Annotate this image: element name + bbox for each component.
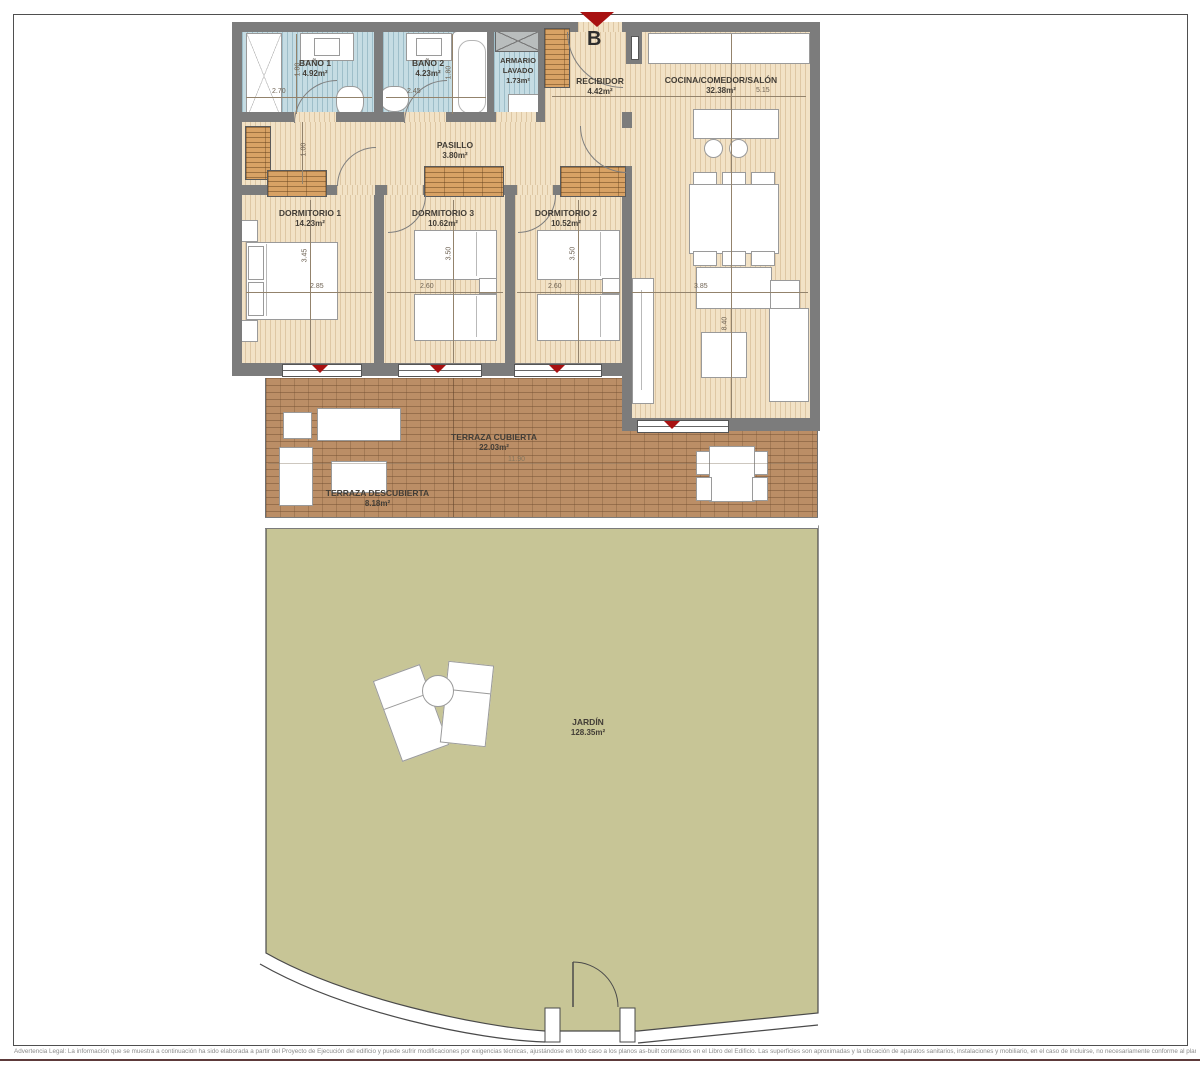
island-stool-1 bbox=[704, 139, 723, 158]
bano2-toilet bbox=[380, 86, 409, 112]
terrace-sofa bbox=[317, 408, 401, 441]
room-name: BAÑO 1 bbox=[285, 58, 345, 69]
gate-post-right bbox=[620, 1008, 635, 1042]
dim-salon-h: 8.40 bbox=[722, 307, 729, 341]
label-pasillo: PASILLO 3.80m² bbox=[425, 140, 485, 161]
sofa-corner bbox=[770, 280, 800, 310]
terrace-dining-table bbox=[709, 446, 755, 502]
dim-line bbox=[246, 292, 372, 293]
room-area: 22.03m² bbox=[446, 443, 542, 453]
wardrobe-dorm3 bbox=[424, 166, 504, 197]
washing-machine bbox=[495, 30, 541, 52]
sofa-vertical bbox=[769, 308, 809, 402]
bed-line bbox=[600, 232, 601, 276]
room-name: TERRAZA CUBIERTA bbox=[446, 432, 542, 443]
label-bano2: BAÑO 2 4.23m² bbox=[398, 58, 458, 79]
dining-chair bbox=[693, 251, 717, 266]
terrace-left-edge bbox=[265, 378, 266, 526]
room-area: 1.73m² bbox=[492, 76, 544, 86]
room-area: 8.18m² bbox=[325, 499, 430, 509]
wall-bano1-bano2 bbox=[374, 22, 383, 122]
bed-line bbox=[600, 296, 601, 337]
salon-window bbox=[637, 420, 729, 433]
legal-disclaimer: Advertencia Legal: La información que se… bbox=[14, 1048, 1196, 1055]
room-name: JARDÍN bbox=[545, 717, 631, 728]
dim-bano1-w: 2.70 bbox=[272, 88, 286, 95]
label-cocina: COCINA/COMEDOR/SALÓN 32.38m² bbox=[640, 75, 802, 96]
room-name: BAÑO 2 bbox=[398, 58, 458, 69]
window-arrow-icon bbox=[312, 365, 328, 373]
bed-line bbox=[476, 296, 477, 337]
sun-lounger bbox=[440, 661, 494, 747]
unit-letter: B bbox=[587, 28, 601, 51]
dim-line-terrace bbox=[268, 463, 816, 464]
dim-line bbox=[517, 292, 620, 293]
label-jardin: JARDÍN 128.35m² bbox=[545, 717, 631, 738]
room-name: TERRAZA DESCUBIERTA bbox=[325, 488, 430, 499]
room-name: COCINA/COMEDOR/SALÓN bbox=[640, 75, 802, 86]
room-name: DORMITORIO 2 bbox=[528, 208, 604, 219]
dim-terraza-w: 11.90 bbox=[508, 456, 525, 463]
dim-bano2-w: 2.45 bbox=[407, 88, 421, 95]
dim-line bbox=[632, 292, 808, 293]
pillow bbox=[248, 246, 264, 280]
wall-top bbox=[232, 22, 820, 32]
kitchen-duct-inner bbox=[631, 36, 639, 60]
terrace-chair bbox=[696, 477, 712, 501]
wall-dorm1-dorm3 bbox=[374, 195, 384, 373]
bed-line bbox=[266, 244, 267, 316]
dorm2-door-opening bbox=[517, 185, 553, 195]
room-area: 128.35m² bbox=[545, 728, 631, 738]
room-area: 10.62m² bbox=[405, 219, 481, 229]
room-area: 10.52m² bbox=[528, 219, 604, 229]
dorm1-door-opening bbox=[337, 185, 375, 195]
label-bano1: BAÑO 1 4.92m² bbox=[285, 58, 345, 79]
dim-salon-w: 3.85 bbox=[694, 283, 708, 290]
dorm3-bed-b bbox=[414, 294, 497, 341]
kitchen-counter bbox=[648, 33, 810, 64]
entrance-arrow-icon bbox=[580, 12, 614, 27]
bathtub-inner bbox=[458, 40, 486, 114]
dim-line bbox=[386, 97, 486, 98]
dim-dorm1-w: 2.85 bbox=[310, 283, 324, 290]
wall-salon-left bbox=[622, 166, 632, 418]
terrace-chair bbox=[752, 477, 768, 501]
wardrobe-hall-horizontal bbox=[267, 170, 327, 197]
dorm3-door-opening bbox=[387, 185, 423, 195]
terrace-side-table bbox=[283, 412, 312, 439]
label-dormitorio1: DORMITORIO 1 14.23m² bbox=[272, 208, 348, 229]
tv-unit-line bbox=[641, 290, 642, 390]
wall-right bbox=[810, 22, 820, 430]
wall-left bbox=[232, 22, 242, 375]
dining-chair bbox=[751, 251, 775, 266]
pillow bbox=[248, 282, 264, 316]
room-name: DORMITORIO 3 bbox=[405, 208, 481, 219]
dining-chair bbox=[722, 251, 746, 266]
garden-area bbox=[250, 515, 830, 1055]
label-terraza-descubierta: TERRAZA DESCUBIERTA 8.18m² bbox=[325, 488, 430, 509]
dim-dorm2-h: 3.50 bbox=[570, 237, 577, 271]
label-recibidor: RECIBIDOR 4.42m² bbox=[563, 76, 637, 97]
dim-dorm3-h: 3.50 bbox=[446, 237, 453, 271]
room-area: 4.42m² bbox=[563, 87, 637, 97]
armario-door-opening bbox=[496, 112, 536, 122]
garden-fill bbox=[266, 526, 818, 1031]
dorm3-bed-a bbox=[414, 230, 497, 280]
room-area: 32.38m² bbox=[640, 86, 802, 96]
window-arrow-icon bbox=[549, 365, 565, 373]
wall-dorm3-dorm2 bbox=[505, 195, 515, 373]
terrace-garden-band bbox=[265, 517, 818, 529]
label-terraza-cubierta: TERRAZA CUBIERTA 22.03m² bbox=[446, 432, 542, 453]
kitchen-island bbox=[693, 109, 779, 139]
dim-pasillo-h: 1.00 bbox=[301, 133, 308, 167]
room-name: ARMARIO LAVADO bbox=[492, 56, 544, 76]
label-armario-lavado: ARMARIO LAVADO 1.73m² bbox=[492, 56, 544, 85]
garden-round-table bbox=[422, 675, 454, 707]
dim-line bbox=[246, 97, 372, 98]
room-area: 4.92m² bbox=[285, 69, 345, 79]
dim-dorm3-w: 2.60 bbox=[420, 283, 434, 290]
gate-post-left bbox=[545, 1008, 560, 1042]
dim-dorm2-w: 2.60 bbox=[548, 283, 562, 290]
room-name: PASILLO bbox=[425, 140, 485, 151]
bano2-sink bbox=[416, 38, 442, 56]
label-dormitorio3: DORMITORIO 3 10.62m² bbox=[405, 208, 481, 229]
label-dormitorio2: DORMITORIO 2 10.52m² bbox=[528, 208, 604, 229]
room-area: 3.80m² bbox=[425, 151, 485, 161]
terrace-armchair bbox=[279, 447, 313, 506]
dim-line bbox=[387, 292, 503, 293]
footer-rule bbox=[0, 1059, 1200, 1061]
room-name: DORMITORIO 1 bbox=[272, 208, 348, 219]
window-arrow-icon bbox=[664, 421, 680, 429]
floorplan-sheet: 2.70 1.80 2.45 1.80 5.15 1.00 3.45 2.85 … bbox=[0, 0, 1200, 1072]
bano1-sink bbox=[314, 38, 340, 56]
room-area: 4.23m² bbox=[398, 69, 458, 79]
tv-unit bbox=[632, 278, 654, 404]
room-name: RECIBIDOR bbox=[563, 76, 637, 87]
shower bbox=[246, 33, 282, 119]
room-area: 14.23m² bbox=[272, 219, 348, 229]
dining-table bbox=[689, 184, 779, 254]
window-arrow-icon bbox=[430, 365, 446, 373]
bed-line bbox=[476, 232, 477, 276]
dim-dorm1-h: 3.45 bbox=[302, 239, 309, 273]
